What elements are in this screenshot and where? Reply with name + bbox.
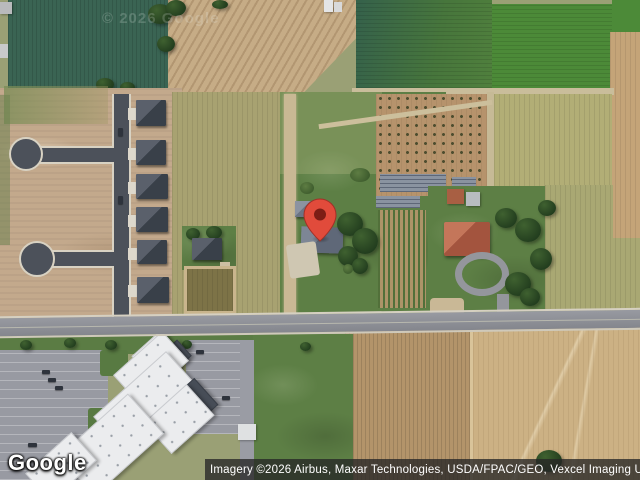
house [136,140,166,165]
google-logo[interactable]: Google [8,450,87,476]
farmhouse [192,238,222,260]
edge-building-1 [0,2,12,14]
wheat-field-west [345,326,473,480]
shed-white-1 [324,0,333,12]
map-viewport[interactable]: © 2026 Google Google Imagery ©2026 Airbu… [0,0,640,480]
tree [212,0,228,9]
field-green-b [492,4,614,90]
field-pale-green-right-edge [610,238,640,314]
tree [300,342,311,351]
tree [538,200,556,216]
field-green-a-rows [356,0,492,92]
house [136,174,168,199]
car [48,378,56,382]
bush [350,168,370,182]
garden-row-plots [378,210,426,308]
tree [352,258,368,274]
car [118,128,123,136]
pin-inner-dot [314,209,326,221]
house [136,100,166,126]
driveway [128,248,137,260]
field-tan-right-strip [610,32,640,242]
car [55,386,63,390]
tree [64,338,76,348]
tree [20,340,32,350]
garden-beds-blue-3 [376,196,420,208]
school-court [238,424,256,440]
east-farm-shed-gray [466,192,480,206]
field-green-corner [612,0,640,36]
attribution-bar: Imagery ©2026 Airbus, Maxar Technologies… [205,459,640,480]
shed-white-2 [334,2,342,12]
paddock [184,266,236,314]
house [136,207,168,232]
location-pin-icon[interactable] [303,198,337,242]
bush [300,182,314,194]
bush [343,264,353,274]
car [222,396,230,400]
car [42,370,50,374]
attribution-text: Imagery ©2026 Airbus, Maxar Technologies… [210,464,640,476]
tree [530,248,552,270]
culdesac-1-bulb [9,137,43,171]
edge-green-strip [0,95,10,245]
driveway [128,285,137,297]
tree [520,288,540,306]
subdivision-grass-wedge [4,86,108,124]
car [196,350,204,354]
road-centerline [0,319,640,329]
house [137,240,167,264]
map-watermark: © 2026 Google [102,10,219,27]
tree [105,340,117,350]
tree [157,36,175,52]
tree [515,218,541,242]
east-farmhouse [444,222,490,256]
house [137,277,169,303]
car [118,196,123,204]
car [28,443,37,447]
tree [495,208,517,228]
pin-house-driveway [286,241,320,279]
east-farm-loop-driveway [455,252,509,296]
east-farm-shed-orange [447,189,464,204]
culdesac-2-bulb [19,241,55,277]
edge-building-2 [0,44,8,58]
